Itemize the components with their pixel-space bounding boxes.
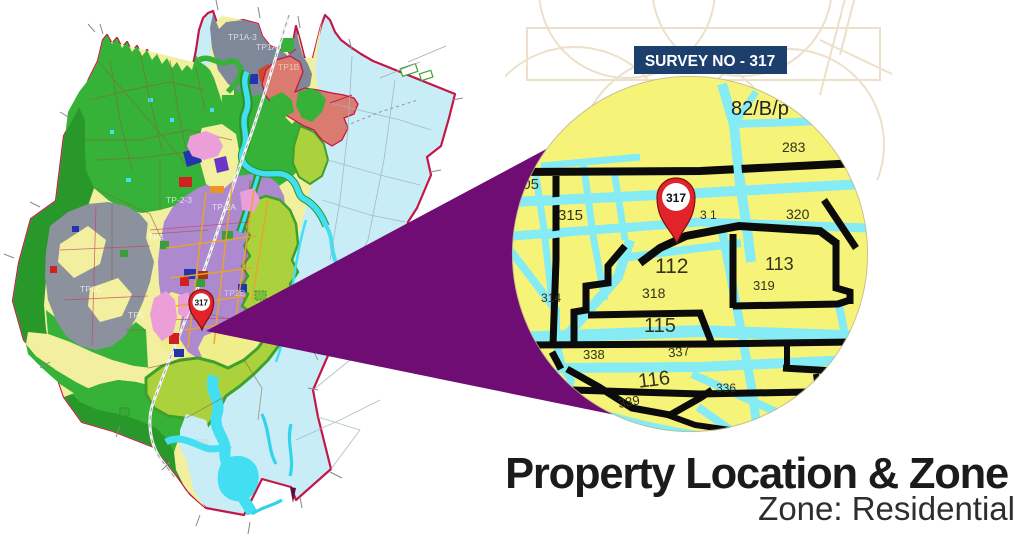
svg-text:3 1: 3 1	[700, 208, 717, 222]
svg-text:319: 319	[753, 278, 775, 293]
svg-text:314: 314	[541, 291, 561, 305]
svg-text:TP-2-3: TP-2-3	[166, 195, 192, 205]
svg-text:115: 115	[644, 315, 676, 337]
svg-text:Zone: Residential: Zone: Residential	[758, 490, 1015, 527]
svg-text:TP-2A: TP-2A	[212, 202, 236, 212]
svg-text:TP5: TP5	[128, 310, 144, 320]
svg-text:320: 320	[786, 206, 810, 222]
svg-text:TP4: TP4	[148, 232, 164, 242]
svg-text:112: 112	[655, 255, 688, 278]
svg-text:338: 338	[583, 347, 605, 362]
svg-text:TP1C: TP1C	[80, 284, 102, 294]
svg-text:337: 337	[667, 343, 690, 360]
svg-text:TP1A: TP1A	[256, 42, 278, 52]
svg-text:SURVEY NO - 317: SURVEY NO - 317	[645, 53, 775, 70]
svg-text:315: 315	[558, 207, 583, 224]
svg-text:116: 116	[637, 367, 671, 393]
svg-text:TP1B: TP1B	[278, 62, 300, 72]
svg-text:336: 336	[716, 381, 736, 395]
svg-text:317: 317	[195, 298, 209, 307]
svg-text:113: 113	[765, 254, 794, 274]
svg-text:TP6: TP6	[196, 439, 209, 446]
svg-text:317: 317	[666, 191, 686, 205]
svg-text:TP2B: TP2B	[224, 288, 246, 298]
svg-text:318: 318	[642, 285, 666, 301]
svg-text:283: 283	[782, 139, 806, 155]
svg-text:TP1A-3: TP1A-3	[228, 32, 257, 42]
